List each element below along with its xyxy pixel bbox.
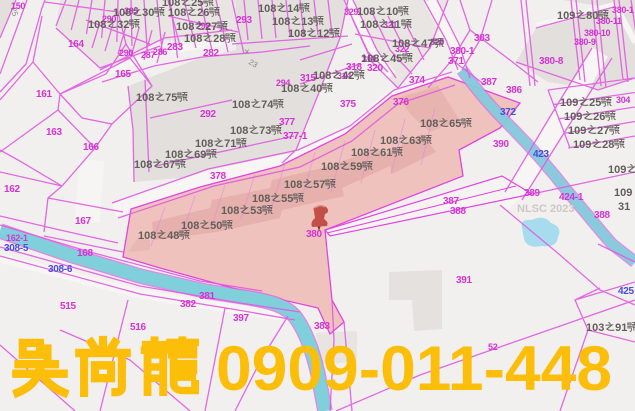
svg-text:32: 32 [117,19,129,31]
svg-text:61: 61 [380,147,392,159]
svg-text:108: 108 [258,3,276,15]
svg-text:167: 167 [75,216,92,227]
svg-text:378: 378 [210,171,227,182]
svg-text:10: 10 [386,6,398,18]
svg-text:103: 103 [586,322,604,334]
svg-text:108: 108 [232,99,250,111]
svg-text:55: 55 [281,193,293,205]
svg-text:71: 71 [224,138,236,150]
svg-text:374: 374 [409,75,426,86]
svg-text:292: 292 [200,109,217,120]
svg-text:45: 45 [390,53,402,65]
svg-text:75: 75 [165,92,177,104]
svg-text:73: 73 [259,125,271,137]
svg-text:63: 63 [409,135,421,147]
svg-text:53: 53 [250,205,262,217]
svg-text:397: 397 [233,313,250,324]
svg-text:286: 286 [153,47,167,57]
svg-text:108: 108 [313,70,331,82]
svg-text:388: 388 [450,206,467,217]
svg-text:381: 381 [199,291,216,302]
svg-text:28: 28 [213,33,225,45]
svg-text:50: 50 [210,220,222,232]
svg-text:383: 383 [474,33,491,44]
svg-text:380-11: 380-11 [596,16,622,26]
svg-text:390: 390 [493,139,510,150]
svg-text:162: 162 [4,184,21,195]
svg-text:48: 48 [167,230,179,242]
svg-text:108: 108 [168,7,186,19]
svg-text:27: 27 [597,125,609,137]
svg-text:166: 166 [83,142,100,153]
svg-text:423: 423 [533,149,550,160]
svg-text:425: 425 [618,286,635,297]
svg-text:387: 387 [481,77,498,88]
svg-text:×: × [244,47,250,58]
svg-text:371: 371 [448,56,465,67]
svg-text:26: 26 [593,111,605,123]
svg-text:109: 109 [560,97,578,109]
svg-text:108: 108 [420,118,438,130]
svg-text:109: 109 [564,111,582,123]
svg-text:282: 282 [203,48,220,59]
svg-text:424-1: 424-1 [559,192,584,203]
svg-text:69: 69 [194,149,206,161]
svg-text:108: 108 [252,193,270,205]
svg-text:375: 375 [340,99,357,110]
svg-text:80: 80 [586,10,598,22]
svg-text:389: 389 [524,188,541,199]
svg-text:108: 108 [351,147,369,159]
svg-text:164: 164 [68,39,85,50]
svg-text:516: 516 [130,322,147,333]
svg-text:108: 108 [134,159,152,171]
svg-text:386: 386 [506,85,523,96]
svg-text:304: 304 [616,95,630,105]
svg-text:108: 108 [138,230,156,242]
svg-text:162-1: 162-1 [6,233,28,243]
svg-text:168: 168 [77,248,94,259]
svg-text:108: 108 [181,220,199,232]
svg-text:108: 108 [230,125,248,137]
svg-text:108: 108 [136,92,154,104]
svg-text:109: 109 [614,187,632,199]
svg-text:42: 42 [342,70,354,82]
svg-text:108: 108 [357,6,375,18]
svg-text:109: 109 [573,139,591,151]
svg-text:74: 74 [261,99,274,111]
svg-text:27: 27 [205,21,217,33]
svg-text:31: 31 [618,201,630,213]
svg-text:283: 283 [167,42,184,53]
svg-text:108: 108 [361,53,379,65]
svg-text:108: 108 [184,33,202,45]
svg-text:NLSC 2023: NLSC 2023 [517,203,574,215]
svg-text:109: 109 [608,164,626,176]
svg-text:59: 59 [350,161,362,173]
svg-text:109: 109 [568,125,586,137]
svg-text:108: 108 [272,16,290,28]
svg-text:293: 293 [236,15,253,26]
svg-text:108: 108 [281,83,299,95]
svg-text:165: 165 [115,69,132,80]
svg-text:30: 30 [142,7,154,19]
svg-text:28: 28 [602,139,614,151]
svg-text:47: 47 [421,38,433,50]
svg-text:0909-011-448: 0909-011-448 [216,334,612,404]
svg-text:57: 57 [313,179,325,191]
svg-text:108: 108 [321,161,339,173]
svg-text:377-1: 377-1 [283,131,308,142]
svg-text:108: 108 [288,28,306,40]
svg-text:108: 108 [88,19,106,31]
svg-text:108: 108 [284,179,302,191]
svg-text:377: 377 [279,117,296,128]
svg-text:308-5: 308-5 [4,243,29,254]
svg-text:376: 376 [393,97,410,108]
svg-text:25: 25 [589,97,601,109]
svg-text:391: 391 [456,275,473,286]
svg-text:13: 13 [301,16,313,28]
svg-text:67: 67 [163,159,175,171]
svg-text:308-6: 308-6 [48,264,73,275]
svg-text:380-1: 380-1 [612,5,634,15]
svg-text:14: 14 [287,3,300,15]
svg-text:380-1: 380-1 [450,46,475,57]
svg-text:380: 380 [306,229,323,240]
svg-text:40: 40 [310,83,322,95]
svg-text:108: 108 [221,205,239,217]
svg-text:65: 65 [449,118,461,130]
svg-text:11: 11 [389,19,401,31]
svg-text:382: 382 [180,299,197,310]
svg-text:380-9: 380-9 [574,37,596,47]
svg-text:108: 108 [176,21,194,33]
svg-text:108: 108 [380,135,398,147]
svg-text:290: 290 [119,48,133,58]
svg-text:26: 26 [197,7,209,19]
svg-text:380-8: 380-8 [539,56,564,67]
svg-text:109: 109 [557,10,575,22]
svg-text:91: 91 [615,322,627,334]
svg-text:383: 383 [314,321,331,332]
svg-text:12: 12 [317,28,329,40]
svg-text:108: 108 [360,19,378,31]
svg-text:388: 388 [594,210,611,221]
svg-text:108: 108 [113,7,131,19]
svg-text:515: 515 [60,301,77,312]
svg-text:372: 372 [500,107,517,118]
svg-text:108: 108 [392,38,410,50]
svg-text:163: 163 [46,127,63,138]
svg-text:161: 161 [36,89,53,100]
